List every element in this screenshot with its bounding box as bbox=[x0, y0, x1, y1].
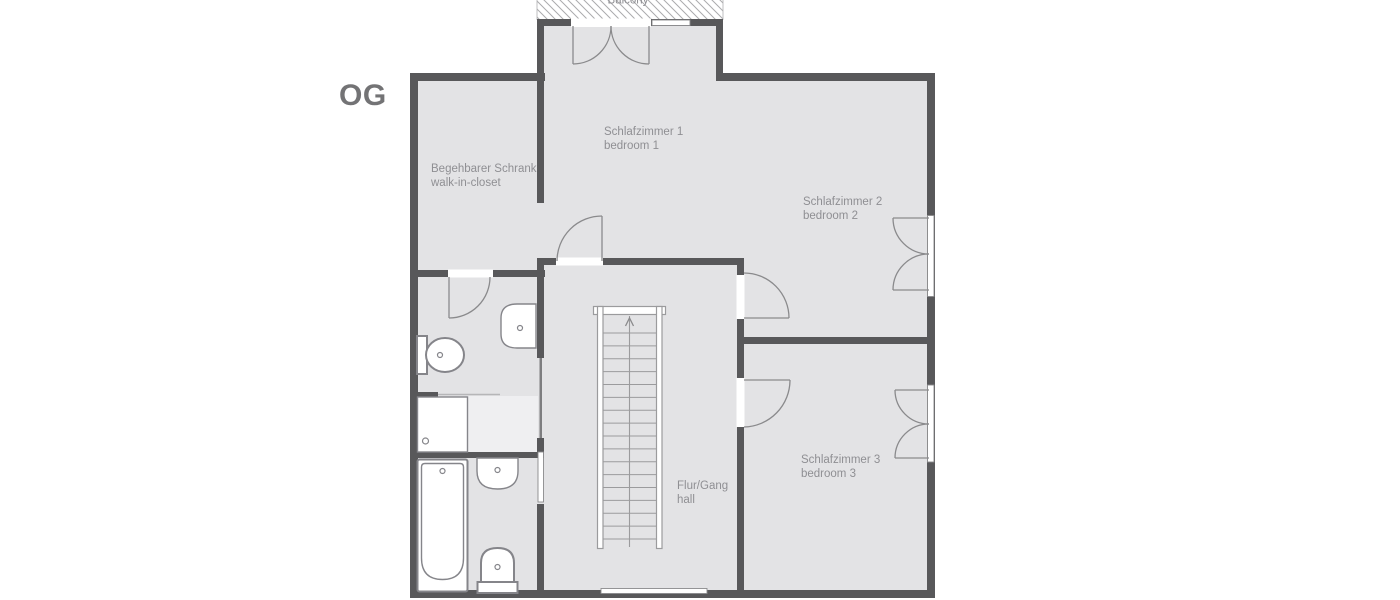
balcony-door-gap bbox=[571, 19, 651, 28]
bathroom-sink bbox=[477, 458, 518, 489]
wall-bath-door-stub bbox=[537, 438, 544, 452]
bedroom2-window-bar bbox=[928, 216, 935, 297]
closet-label-de: Begehbarer Schrank bbox=[431, 163, 537, 175]
wall-bump-right bbox=[716, 19, 723, 81]
stair-stringer-right bbox=[657, 307, 663, 549]
bathtub bbox=[418, 460, 468, 592]
hall-window bbox=[601, 589, 707, 594]
floorplan-svg: OG Balcony bbox=[0, 0, 1400, 600]
shower-zone-floor bbox=[467, 396, 538, 452]
bedroom2-label-en: bedroom 2 bbox=[803, 210, 858, 222]
bedroom1-label-de: Schlafzimmer 1 bbox=[604, 126, 683, 138]
bedroom1-door-gap bbox=[556, 258, 603, 266]
wall-wc-right-thin bbox=[540, 358, 543, 440]
wall-top-right bbox=[716, 73, 935, 81]
bedroom3-door-gap bbox=[737, 378, 745, 427]
bedroom2-label-de: Schlafzimmer 2 bbox=[803, 196, 882, 208]
balcony: Balcony bbox=[537, 0, 723, 20]
wall-bath-top bbox=[410, 452, 544, 458]
bedroom3-label-en: bedroom 3 bbox=[801, 468, 856, 480]
bedroom1-bump-floor bbox=[544, 24, 718, 82]
balcony-window bbox=[652, 20, 690, 26]
wall-top-left bbox=[410, 73, 545, 81]
wall-wc-right bbox=[537, 270, 544, 358]
bathroom-toilet bbox=[478, 548, 518, 593]
wall-closet-divider bbox=[537, 81, 544, 203]
bedroom2-door-gap bbox=[737, 275, 745, 319]
wall-right-outer bbox=[927, 73, 935, 598]
stair-stringer-left bbox=[598, 307, 604, 549]
wall-shower-stub bbox=[410, 392, 438, 397]
bedroom3-label-de: Schlafzimmer 3 bbox=[801, 454, 880, 466]
bathroom-door-leaf bbox=[538, 452, 544, 502]
wc-sink bbox=[501, 304, 536, 348]
floorplan-canvas: OG Balcony bbox=[0, 0, 1400, 600]
hall-label-de: Flur/Gang bbox=[677, 480, 728, 492]
wall-bump-left bbox=[537, 19, 544, 81]
wall-bath-right bbox=[537, 504, 544, 598]
wc-toilet bbox=[417, 336, 464, 374]
floor-title: OG bbox=[339, 79, 387, 112]
bedroom1-label-en: bedroom 1 bbox=[604, 140, 659, 152]
wall-bed2-bed3-divider bbox=[737, 337, 935, 344]
closet-label-en: walk-in-closet bbox=[430, 177, 501, 189]
hall-label-en: hall bbox=[677, 494, 695, 506]
balcony-label: Balcony bbox=[608, 0, 649, 7]
shower-tray bbox=[418, 397, 468, 452]
stair-top-cap bbox=[594, 307, 666, 315]
wc-door-gap bbox=[448, 270, 493, 278]
main-floor bbox=[416, 79, 929, 592]
